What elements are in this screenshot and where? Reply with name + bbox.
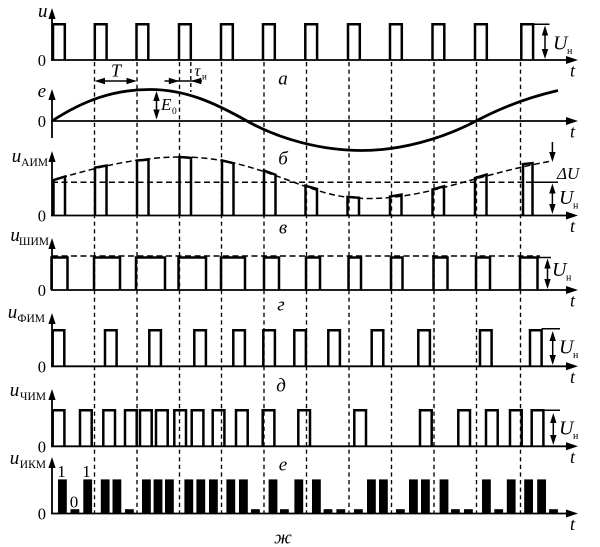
svg-text:н: н [573,201,579,212]
svg-text:0: 0 [38,357,46,376]
svg-text:E: E [160,95,172,114]
svg-text:ж: ж [274,528,292,547]
svg-text:ИКМ: ИКМ [20,459,46,471]
svg-text:1: 1 [82,462,91,481]
svg-text:ЧИМ: ЧИМ [20,391,46,403]
svg-text:н: н [573,431,579,442]
svg-text:u: u [10,448,20,469]
svg-text:u: u [10,225,20,246]
svg-text:н: н [567,46,573,57]
svg-text:ФИМ: ФИМ [17,313,45,325]
svg-text:0: 0 [70,493,79,512]
svg-text:u: u [12,146,22,167]
svg-text:АИМ: АИМ [21,157,48,169]
svg-text:н: н [573,350,579,361]
svg-text:0: 0 [172,107,177,117]
svg-text:u: u [10,380,20,401]
svg-text:e: e [38,81,46,102]
svg-text:0: 0 [38,112,46,131]
svg-text:a: a [278,69,288,90]
svg-text:ШИМ: ШИМ [19,236,49,248]
svg-text:1: 1 [57,462,66,481]
svg-text:н: н [566,273,572,284]
svg-text:0: 0 [38,437,46,456]
svg-text:г: г [277,295,284,316]
svg-text:е: е [279,455,287,476]
svg-text:0: 0 [38,281,46,300]
svg-text:д: д [276,376,286,397]
svg-text:в: в [279,218,287,239]
svg-text:u: u [8,302,18,323]
svg-text:ΔU: ΔU [556,164,581,183]
svg-text:u: u [38,1,48,22]
svg-text:0: 0 [38,505,46,524]
svg-text:0: 0 [38,207,46,226]
svg-text:и: и [202,72,207,82]
svg-text:0: 0 [38,51,46,70]
svg-text:б: б [278,149,289,170]
